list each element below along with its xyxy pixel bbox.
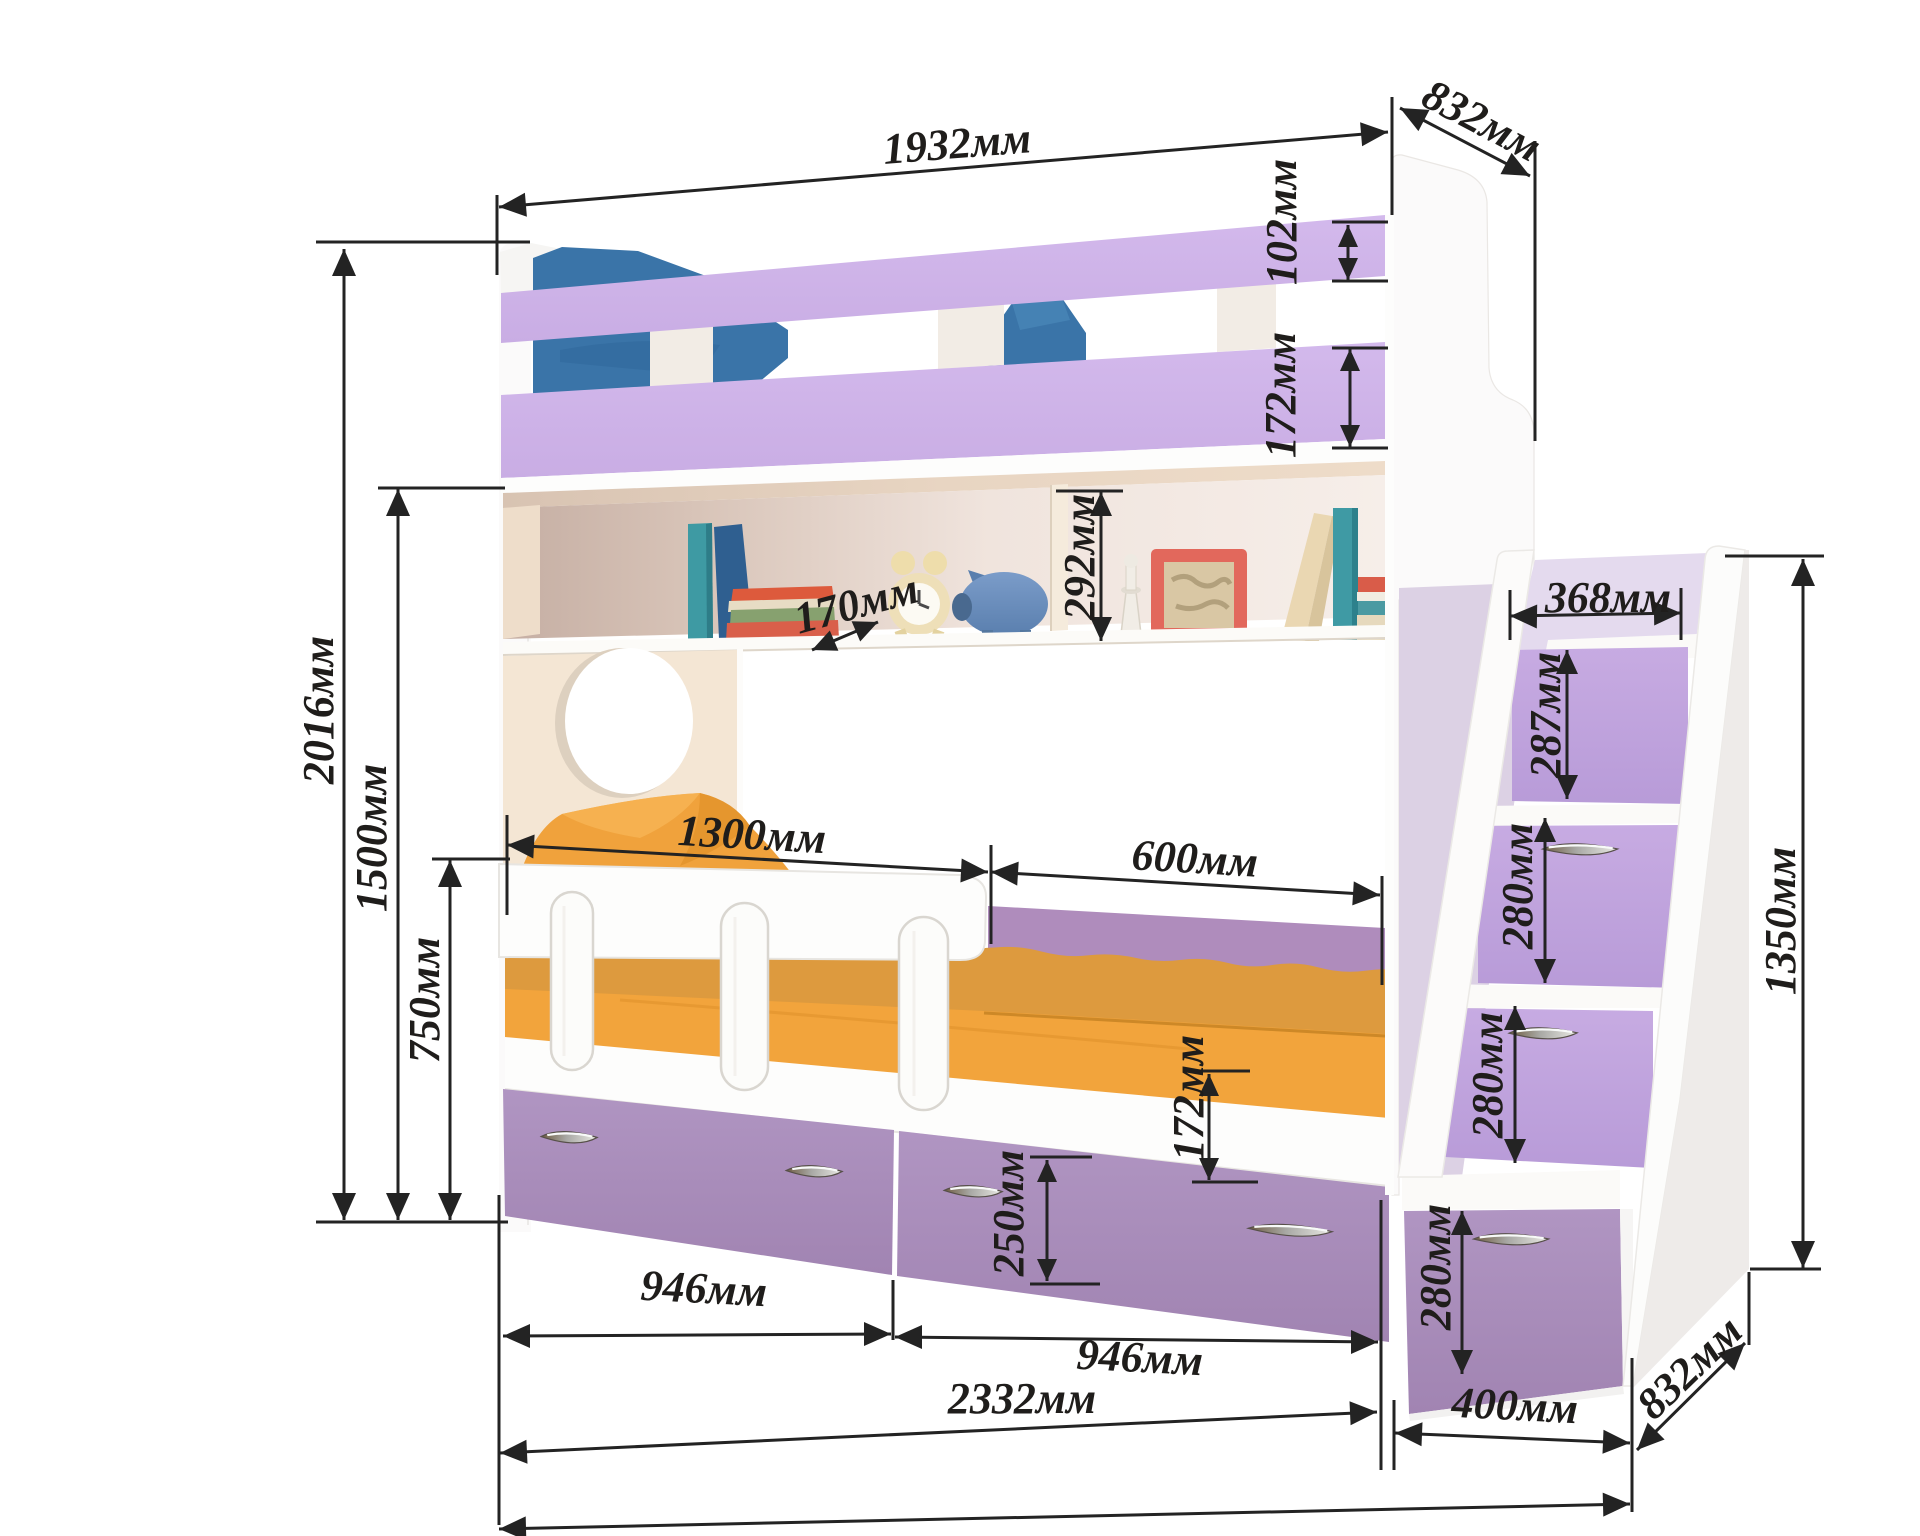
svg-text:250мм: 250мм bbox=[984, 1150, 1033, 1277]
svg-text:600мм: 600мм bbox=[1130, 830, 1259, 886]
svg-text:2016мм: 2016мм bbox=[294, 636, 343, 785]
svg-text:102мм: 102мм bbox=[1257, 159, 1306, 285]
svg-text:400мм: 400мм bbox=[1450, 1378, 1580, 1434]
svg-text:1500мм: 1500мм bbox=[347, 764, 396, 912]
svg-text:280мм: 280мм bbox=[1463, 1012, 1512, 1139]
svg-text:2332мм: 2332мм bbox=[947, 1374, 1096, 1423]
svg-text:287мм: 287мм bbox=[1521, 652, 1570, 779]
svg-text:172мм: 172мм bbox=[1256, 332, 1305, 458]
svg-text:280мм: 280мм bbox=[1411, 1204, 1460, 1331]
svg-text:946мм: 946мм bbox=[640, 1261, 769, 1317]
svg-text:750мм: 750мм bbox=[400, 937, 449, 1063]
svg-text:172мм: 172мм bbox=[1164, 1035, 1213, 1161]
svg-text:292мм: 292мм bbox=[1055, 494, 1104, 621]
svg-text:280мм: 280мм bbox=[1493, 823, 1542, 950]
svg-text:1350мм: 1350мм bbox=[1756, 847, 1805, 995]
svg-text:368мм: 368мм bbox=[1544, 573, 1671, 622]
svg-text:1300мм: 1300мм bbox=[677, 806, 828, 863]
